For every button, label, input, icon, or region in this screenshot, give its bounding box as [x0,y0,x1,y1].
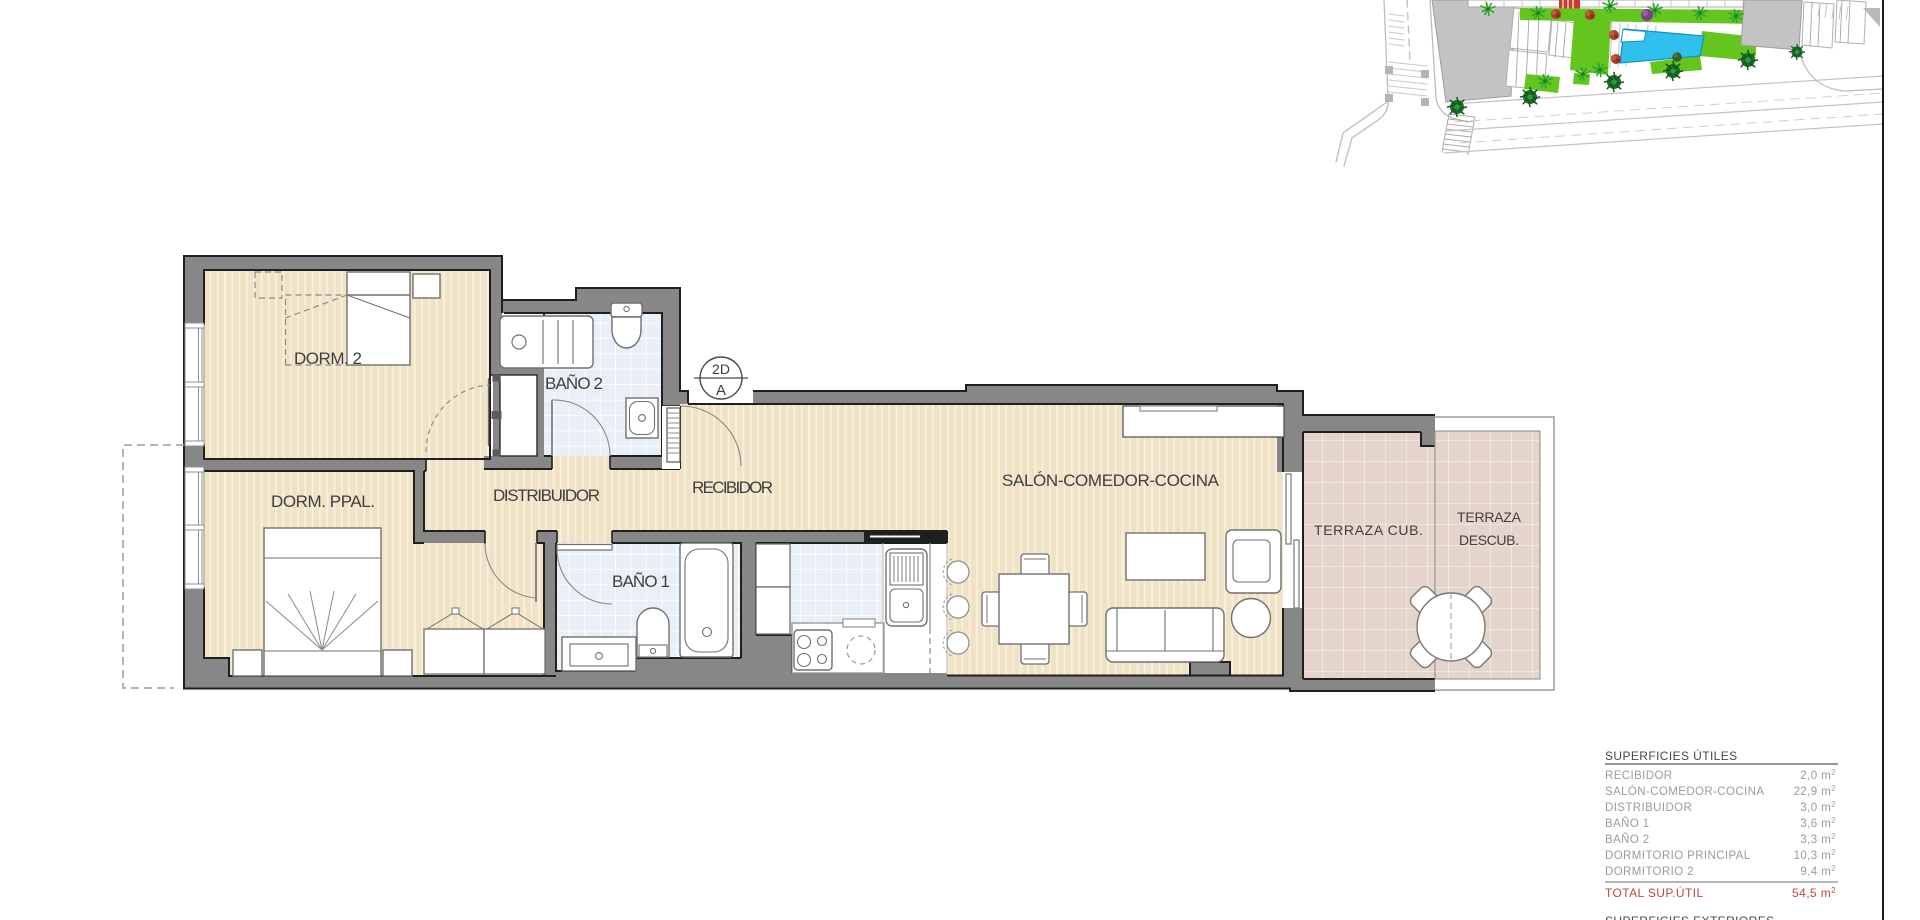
svg-text:22,9 m2: 22,9 m2 [1794,784,1837,798]
svg-text:DORMITORIO 2: DORMITORIO 2 [1605,866,1694,878]
svg-text:SUPERFICIES ÚTILES: SUPERFICIES ÚTILES [1605,748,1738,763]
svg-text:TERRAZA: TERRAZA [1457,509,1522,525]
svg-text:SALÓN-COMEDOR-COCINA: SALÓN-COMEDOR-COCINA [1002,471,1220,490]
svg-text:BAÑO 1: BAÑO 1 [1605,817,1650,830]
svg-text:DORMITORIO PRINCIPAL: DORMITORIO PRINCIPAL [1605,850,1751,862]
svg-text:DORM. PPAL.: DORM. PPAL. [271,492,375,511]
svg-text:3,6 m2: 3,6 m2 [1800,816,1836,830]
svg-text:DESCUB.: DESCUB. [1459,532,1519,548]
svg-text:SALÓN-COMEDOR-COCINA: SALÓN-COMEDOR-COCINA [1605,785,1764,798]
svg-text:DISTRIBUIDOR: DISTRIBUIDOR [1605,802,1692,814]
svg-text:A: A [716,382,726,399]
svg-text:TERRAZA CUB.: TERRAZA CUB. [1314,522,1423,538]
svg-text:BAÑO 1: BAÑO 1 [612,572,670,591]
svg-text:2D: 2D [712,361,730,377]
svg-text:BAÑO 2: BAÑO 2 [545,374,603,393]
svg-text:10,3 m2: 10,3 m2 [1794,848,1837,862]
svg-text:RECIBIDOR: RECIBIDOR [1605,770,1673,782]
svg-text:TOTAL SUP.ÚTIL: TOTAL SUP.ÚTIL [1605,885,1704,900]
svg-text:DISTRIBUIDOR: DISTRIBUIDOR [493,486,600,505]
svg-text:3,0 m2: 3,0 m2 [1800,800,1836,814]
svg-text:2,0 m2: 2,0 m2 [1800,768,1836,782]
svg-text:RECIBIDOR: RECIBIDOR [692,478,773,497]
svg-text:54,5 m2: 54,5 m2 [1792,886,1836,900]
svg-text:DORM. 2: DORM. 2 [294,349,362,368]
svg-text:BAÑO 2: BAÑO 2 [1605,833,1650,846]
svg-text:9,4 m2: 9,4 m2 [1800,864,1836,878]
svg-text:SUPERFICIES EXTERIORES: SUPERFICIES EXTERIORES [1605,914,1775,920]
svg-text:3,3 m2: 3,3 m2 [1800,832,1836,846]
